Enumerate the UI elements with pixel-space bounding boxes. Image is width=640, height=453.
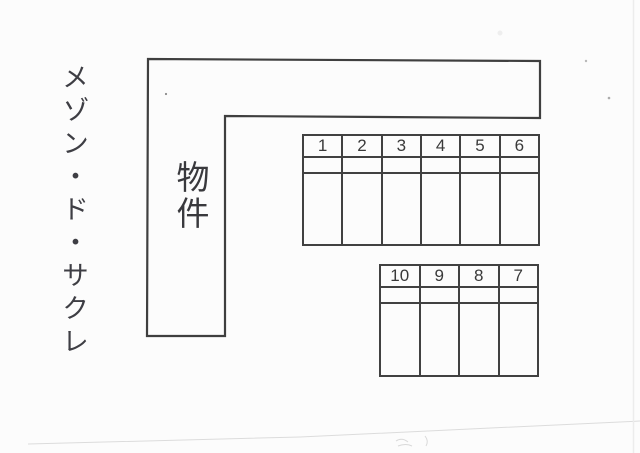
space-number-cell: 9 — [420, 265, 460, 287]
stall-strip-cell — [460, 157, 499, 173]
stall-strip-row — [303, 157, 539, 173]
stall-cell — [460, 173, 499, 245]
parking-row-top: 1 2 3 4 5 6 — [302, 134, 540, 246]
space-number-cell: 6 — [500, 135, 539, 157]
scan-speck — [165, 93, 167, 95]
scan-smudge-marks — [425, 436, 427, 446]
scan-smudge-marks — [396, 439, 412, 446]
stall-strip-cell — [380, 287, 420, 303]
space-number-row: 1 2 3 4 5 6 — [303, 135, 539, 157]
building-label: 物件 — [166, 160, 214, 232]
space-number-cell: 1 — [303, 135, 342, 157]
stall-strip-cell — [303, 157, 342, 173]
stall-cell — [499, 303, 539, 376]
stall-row — [303, 173, 539, 245]
scanned-parking-layout-page: メゾン・ド・サクレ 物件 1 2 3 4 5 6 — [0, 0, 640, 453]
stall-strip-cell — [382, 157, 421, 173]
space-number-cell: 3 — [382, 135, 421, 157]
space-number-cell: 8 — [459, 265, 499, 287]
stall-strip-row — [380, 287, 538, 303]
stall-strip-cell — [421, 157, 460, 173]
stall-strip-cell — [420, 287, 460, 303]
stall-cell — [380, 303, 420, 376]
stall-cell — [342, 173, 381, 245]
stall-strip-cell — [459, 287, 499, 303]
stall-cell — [500, 173, 539, 245]
property-name-label: メゾン・ド・サクレ — [54, 63, 93, 360]
space-number-cell: 5 — [460, 135, 499, 157]
space-number-cell: 7 — [499, 265, 539, 287]
scan-crease-line — [28, 421, 640, 444]
stall-strip-cell — [342, 157, 381, 173]
stall-cell — [303, 173, 342, 245]
scan-smudge-spot — [498, 31, 503, 36]
stall-strip-cell — [500, 157, 539, 173]
parking-row-bottom: 10 9 8 7 — [379, 264, 539, 377]
space-number-cell: 4 — [421, 135, 460, 157]
stall-cell — [420, 303, 460, 376]
space-number-cell: 10 — [380, 265, 420, 287]
space-number-cell: 2 — [342, 135, 381, 157]
space-number-row: 10 9 8 7 — [380, 265, 538, 287]
stall-cell — [459, 303, 499, 376]
scan-speck — [585, 60, 587, 62]
stall-cell — [382, 173, 421, 245]
stall-row — [380, 303, 538, 376]
stall-strip-cell — [499, 287, 539, 303]
stall-cell — [421, 173, 460, 245]
scan-speck — [608, 97, 611, 100]
